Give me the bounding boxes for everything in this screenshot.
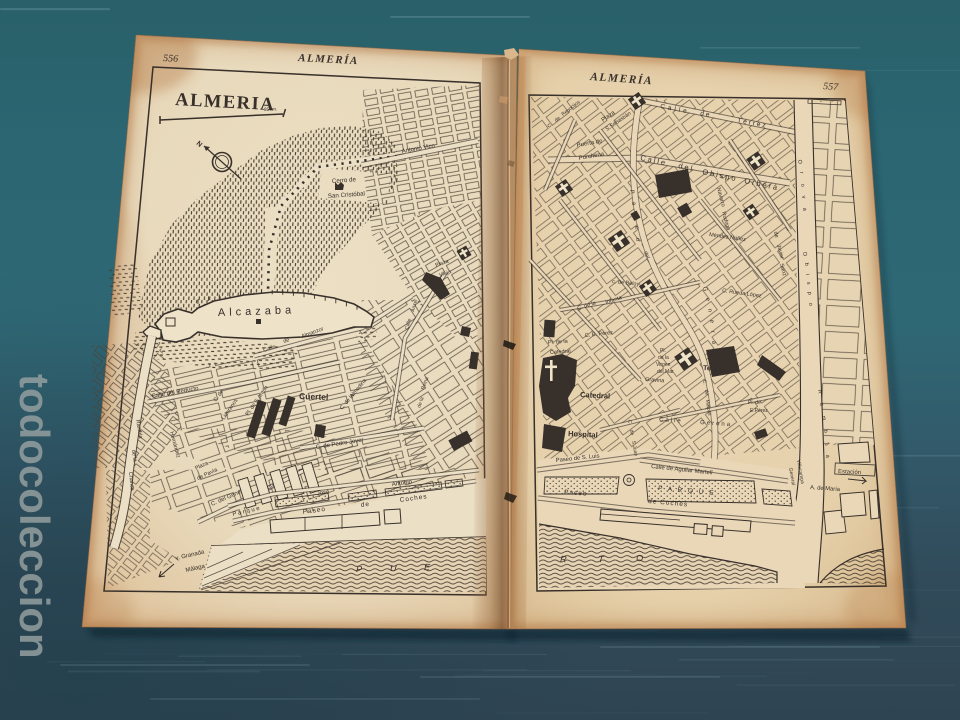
svg-text:Estación: Estación (838, 469, 861, 476)
svg-text:del Mar: del Mar (657, 369, 674, 375)
svg-text:Pl. de: Pl. de (748, 400, 761, 406)
svg-text:556: 556 (163, 53, 179, 65)
svg-text:C.: C. (626, 419, 633, 425)
svg-text:557: 557 (823, 81, 840, 93)
svg-text:850m.: 850m. (264, 106, 278, 113)
svg-text:Catedral: Catedral (580, 390, 610, 401)
svg-text:de: de (360, 501, 370, 509)
svg-text:O: O (636, 553, 644, 563)
svg-text:C.: C. (701, 379, 708, 385)
svg-text:Pl.: Pl. (660, 348, 666, 354)
svg-text:P: P (356, 564, 362, 574)
svg-text:todocoleccion: todocoleccion (11, 374, 58, 659)
svg-text:P: P (628, 190, 634, 195)
svg-text:Virgen: Virgen (656, 362, 671, 368)
svg-text:U: U (390, 563, 397, 573)
svg-text:R: R (560, 554, 568, 564)
svg-text:Hospital: Hospital (568, 429, 598, 440)
svg-text:E.Pérez: E.Pérez (750, 408, 768, 414)
svg-text:Teatro: Teatro (703, 365, 724, 373)
svg-text:Cuertel: Cuertel (299, 391, 329, 402)
svg-text:de la: de la (658, 355, 669, 361)
